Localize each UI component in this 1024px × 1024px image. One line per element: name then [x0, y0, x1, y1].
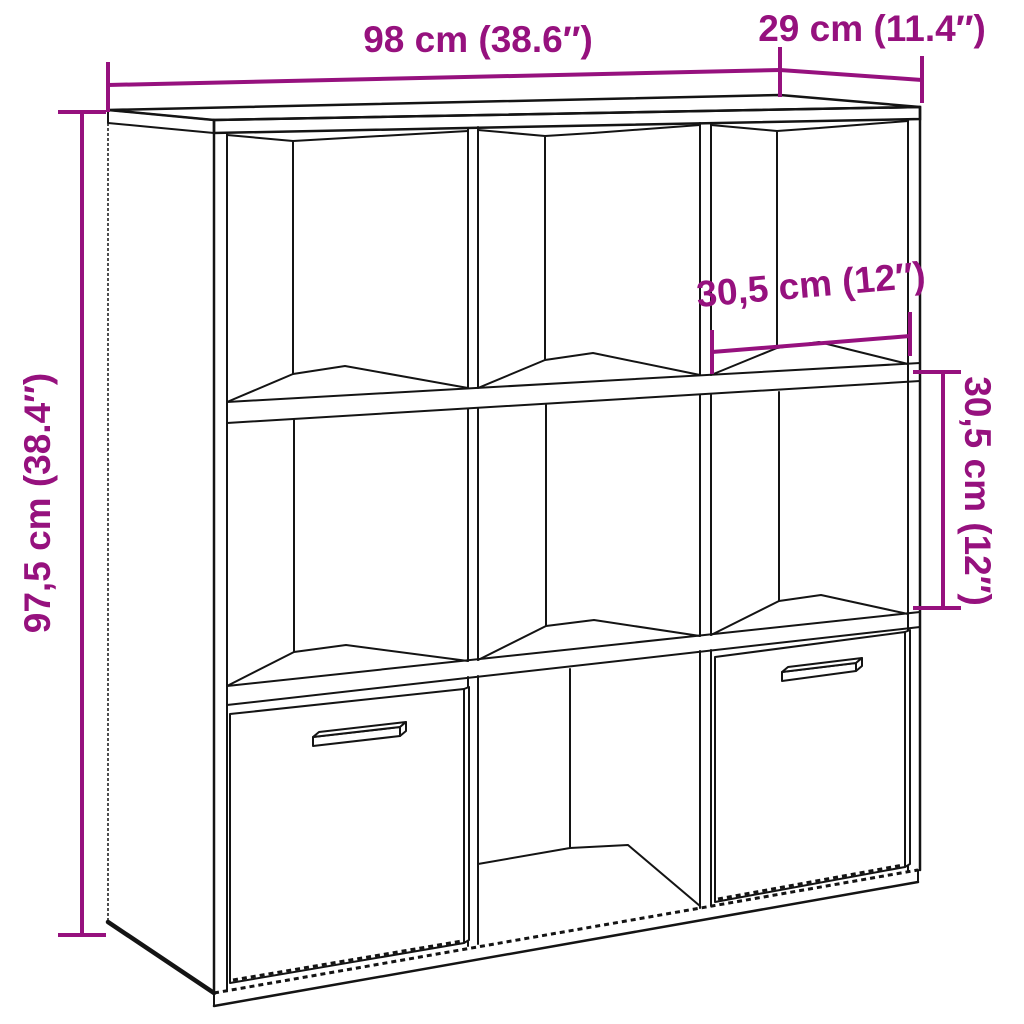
- shelf-surface-lines: [478, 353, 700, 388]
- dimension-label-compartment-width: 30,5 cm (12″): [695, 254, 927, 315]
- dividers: [468, 123, 711, 946]
- dimension-height: 97,5 cm (38.4″): [17, 112, 106, 935]
- dimension-line: [780, 70, 922, 80]
- furniture-dimension-diagram: 98 cm (38.6″) 29 cm (11.4″) 97,5 cm (38.…: [0, 0, 1024, 1024]
- cubby-interior-lines: [711, 392, 908, 635]
- dimension-compartment-width: 30,5 cm (12″): [695, 254, 927, 374]
- bookcase-left-side-panel: [108, 123, 214, 993]
- bookcase-drawing: [108, 95, 920, 1006]
- top-left-fascia: [108, 110, 214, 133]
- shelf-1-front-bottom: [227, 381, 920, 423]
- bookcase-top-board: [108, 95, 920, 133]
- cubby-interior-lines: [227, 420, 468, 686]
- bottom-middle-cubby-interior: [478, 669, 700, 906]
- dimension-depth: 29 cm (11.4″): [758, 8, 986, 103]
- drawer-box-right: [715, 630, 910, 902]
- cubby-interior-lines: [478, 405, 700, 660]
- dimension-label-compartment-height: 30,5 cm (12″): [957, 376, 998, 606]
- left-bottom-edge: [108, 922, 214, 993]
- cubby-interior-lines: [478, 669, 700, 906]
- cubby-interior-lines: [711, 121, 908, 348]
- drawer-side-sliver: [905, 630, 910, 867]
- top-face: [108, 95, 920, 120]
- drawer-side-sliver: [464, 687, 469, 943]
- dimension-compartment-height: 30,5 cm (12″): [913, 372, 998, 608]
- drawer-box-left: [230, 687, 469, 983]
- top-row-cubby-interiors: [227, 121, 908, 374]
- dimension-line: [108, 70, 780, 85]
- dimension-label-height: 97,5 cm (38.4″): [17, 373, 58, 633]
- dimension-label-depth: 29 cm (11.4″): [758, 8, 986, 49]
- shelf-surface-lines: [227, 366, 468, 402]
- diagram-canvas: 98 cm (38.6″) 29 cm (11.4″) 97,5 cm (38.…: [0, 0, 1024, 1024]
- dimension-line: [712, 336, 910, 352]
- cubby-interior-lines: [227, 131, 468, 374]
- dimension-label-width: 98 cm (38.6″): [363, 19, 593, 60]
- middle-row-cubby-interiors: [227, 392, 908, 686]
- cubby-interior-lines: [478, 125, 700, 360]
- shelf-1-surfaces: [227, 342, 908, 402]
